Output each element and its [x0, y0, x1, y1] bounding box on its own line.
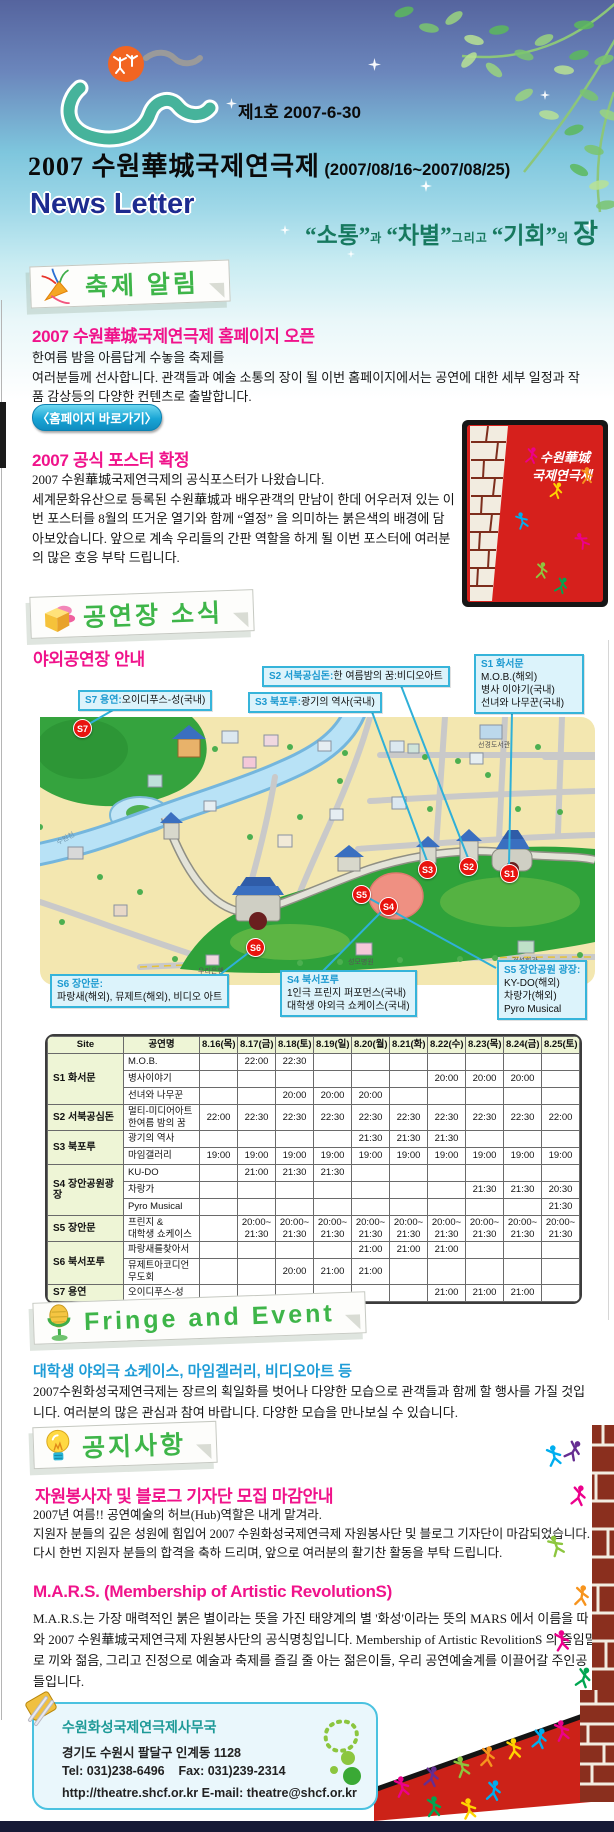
schedule-time-cell: 20:00~ 21:30 — [504, 1216, 542, 1242]
schedule-time-cell — [390, 1182, 428, 1199]
footer-address: 경기도 수원시 팔달구 인계동 1128 — [62, 1742, 241, 1761]
venue-map: 수원천 — [40, 717, 595, 985]
tagline-word: “소통” — [305, 223, 370, 248]
schedule-time-cell — [200, 1165, 238, 1182]
schedule-time-cell: 20:00 — [276, 1259, 314, 1285]
leaf — [593, 53, 614, 68]
leaf — [513, 86, 535, 104]
schedule-time-cell — [276, 1242, 314, 1259]
schedule-table: Site공연명8.16(목)8.17(금)8.18(토)8.19(일)8.20(… — [47, 1036, 580, 1302]
schedule-time-cell: 20:00 — [314, 1088, 352, 1105]
footer-phone-line: Tel: 031)238-6496 Fax: 031)239-2314 — [62, 1764, 286, 1778]
schedule-show-cell: 뮤제트아코디언 무도회 — [124, 1259, 200, 1285]
banner-fold — [196, 1444, 212, 1460]
callout-line: 1인극 프린지 퍼포먼스(국내) — [287, 988, 406, 999]
schedule-time-cell: 21:30 — [542, 1199, 580, 1216]
schedule-time-cell — [276, 1071, 314, 1088]
section-banner-festival-news: 축제 알림 — [29, 260, 230, 309]
schedule-row: S6 북서포루파랑새를찾아서21:0021:0021:00 — [48, 1242, 580, 1259]
schedule-col-header: 8.18(토) — [276, 1037, 314, 1054]
schedule-time-cell: 20:00 — [504, 1071, 542, 1088]
leaf — [568, 48, 590, 62]
schedule-time-cell — [504, 1131, 542, 1148]
fringe-title: 대학생 야외극 쇼케이스, 마임겔러리, 비디오아트 등 — [33, 1360, 352, 1381]
poster-caption-line1: 수원華城 — [540, 450, 592, 465]
schedule-time-cell: 22:30 — [390, 1105, 428, 1131]
schedule-row: S2 서북공심돈멀티-미디어아트 한여름 밤의 꿈22:0022:3022:30… — [48, 1105, 580, 1131]
schedule-show-cell: M.O.B. — [124, 1054, 200, 1071]
page-edge-mark — [0, 402, 6, 468]
schedule-col-header: 8.19(일) — [314, 1037, 352, 1054]
schedule-time-cell — [276, 1131, 314, 1148]
schedule-site-cell: S1 화서문 — [48, 1054, 124, 1105]
tagline-word: “차별” — [386, 223, 451, 248]
callout-head: S7 용연: — [85, 695, 122, 706]
schedule-time-cell — [352, 1054, 390, 1071]
callout-line: 한 여름밤의 꿈:비디오아트 — [333, 671, 443, 682]
leaf — [483, 60, 504, 80]
schedule-time-cell — [238, 1199, 276, 1216]
callout-s2: S2 서북공심돈:한 여름밤의 꿈:비디오아트 — [262, 666, 450, 687]
article-line: 여러분들께 선사합니다. 관객들과 예술 소통의 장이 될 이번 홈페이지에서는… — [32, 368, 588, 407]
schedule-time-cell: 19:00 — [238, 1148, 276, 1165]
schedule-site-cell: S7 용연 — [48, 1285, 124, 1302]
schedule-time-cell: 20:00~ 21:30 — [390, 1216, 428, 1242]
schedule-time-cell: 19:00 — [352, 1148, 390, 1165]
callout-s7: S7 용연:오이디푸스-성(국내) — [78, 690, 212, 711]
gift-cube-icon — [38, 598, 75, 635]
schedule-time-cell — [428, 1165, 466, 1182]
schedule-time-cell — [276, 1199, 314, 1216]
dancing-figure — [575, 1666, 593, 1689]
schedule-time-cell: 20:00~ 21:30 — [466, 1216, 504, 1242]
page-edge-line — [1, 300, 2, 1720]
schedule-time-cell: 21:30 — [276, 1165, 314, 1182]
schedule-time-cell: 19:00 — [390, 1148, 428, 1165]
schedule-time-cell — [466, 1242, 504, 1259]
microphone-icon — [41, 1303, 76, 1342]
schedule-show-cell: 광기의 역사 — [124, 1131, 200, 1148]
schedule-time-cell — [200, 1259, 238, 1285]
callout-line: 대학생 야외극 쇼케이스(국내) — [287, 1001, 410, 1012]
schedule-time-cell — [200, 1054, 238, 1071]
article-body-poster: 2007 수원華城국제연극제의 공식포스터가 나왔습니다. 세계문화유산으로 등… — [32, 470, 456, 568]
schedule-time-cell: 21:30 — [504, 1182, 542, 1199]
article-line: 2007 수원華城국제연극제의 공식포스터가 나왔습니다. — [32, 470, 456, 490]
schedule-time-cell — [314, 1054, 352, 1071]
footer-website-link[interactable]: http://theatre.shcf.or.kr — [62, 1786, 198, 1800]
tagline-joiner: 의 — [557, 231, 569, 245]
schedule-time-cell — [390, 1285, 428, 1302]
schedule-time-cell — [390, 1054, 428, 1071]
schedule-time-cell: 22:30 — [276, 1054, 314, 1071]
schedule-time-cell — [314, 1071, 352, 1088]
dancing-figure — [546, 1444, 561, 1466]
schedule-time-cell — [466, 1199, 504, 1216]
title-dates: (2007/08/16~2007/08/25) — [324, 161, 510, 179]
schedule-time-cell — [314, 1182, 352, 1199]
callout-line: 파랑새(해외), 뮤제트(해외), 비디오 아트 — [57, 992, 222, 1003]
schedule-col-header: 8.24(금) — [504, 1037, 542, 1054]
leaf — [563, 122, 585, 137]
callout-line: 선녀와 나무꾼(국내) — [481, 698, 564, 709]
bottom-bar — [0, 1821, 614, 1832]
article-title-poster: 2007 공식 포스터 확정 — [32, 446, 189, 471]
schedule-time-cell: 20:00~ 21:30 — [238, 1216, 276, 1242]
tagline-word: “기회” — [492, 223, 557, 248]
schedule-time-cell: 20:00~ 21:30 — [542, 1216, 580, 1242]
callout-line: M.O.B.(해외) — [481, 672, 537, 683]
schedule-time-cell — [314, 1242, 352, 1259]
schedule-time-cell — [428, 1199, 466, 1216]
schedule-row: S4 장안공원광장KU-DO21:0021:3021:30 — [48, 1165, 580, 1182]
fringe-body: 2007수원화성국제연극제는 장르의 획일화를 벗어나 다양한 모습으로 관객들… — [33, 1381, 591, 1423]
map-marker-s3: S3 — [418, 860, 437, 879]
schedule-time-cell: 22:30 — [466, 1105, 504, 1131]
page-edge-line — [608, 640, 609, 1320]
footer-tel: Tel: 031)238-6496 — [62, 1764, 165, 1778]
schedule-time-cell — [504, 1165, 542, 1182]
schedule-site-cell: S2 서북공심돈 — [48, 1105, 124, 1131]
schedule-row: 차랑가21:3021:3020:30 — [48, 1182, 580, 1199]
callout-line: KY-DO(해외) — [504, 978, 560, 989]
schedule-col-header: 8.16(목) — [200, 1037, 238, 1054]
schedule-time-cell — [238, 1259, 276, 1285]
schedule-time-cell — [428, 1182, 466, 1199]
schedule-time-cell — [314, 1131, 352, 1148]
schedule-time-cell — [390, 1165, 428, 1182]
schedule-time-cell: 20:00~ 21:30 — [314, 1216, 352, 1242]
callout-head: S2 서북공심돈: — [269, 671, 333, 682]
schedule-time-cell — [542, 1071, 580, 1088]
paint-splat-decoration — [308, 1712, 368, 1792]
schedule-time-cell — [466, 1259, 504, 1285]
tagline: “소통”과 “차별”그리고 “기회”의 장 — [238, 212, 598, 251]
schedule-show-cell: 파랑새를찾아서 — [124, 1242, 200, 1259]
schedule-time-cell: 22:30 — [504, 1105, 542, 1131]
callout-s3: S3 북포루:광기의 역사(국내) — [248, 692, 382, 713]
dancing-figure — [574, 1584, 589, 1606]
schedule-time-cell — [542, 1242, 580, 1259]
mars-title: M.A.R.S. (Membership of Artistic Revolut… — [33, 1582, 392, 1602]
paperclip-icon — [16, 1686, 66, 1738]
schedule-time-cell — [238, 1182, 276, 1199]
map-marker-s1: S1 — [500, 864, 519, 883]
banner-fold — [233, 612, 249, 628]
callout-line: 오이디푸스-성(국내) — [122, 695, 206, 706]
callout-s5: S5 장안공원 광장: KY-DO(해외) 차랑가(해외) Pyro Music… — [497, 960, 587, 1020]
schedule-time-cell — [428, 1054, 466, 1071]
schedule-time-cell — [428, 1088, 466, 1105]
map-marker-s6: S6 — [246, 938, 265, 957]
article-title-homepage-open: 2007 수원華城국제연극제 홈페이지 오픈 — [32, 322, 315, 347]
schedule-col-header: 8.25(토) — [542, 1037, 580, 1054]
schedule-time-cell: 20:00~ 21:30 — [352, 1216, 390, 1242]
schedule-time-cell — [504, 1259, 542, 1285]
map-label-hospital: 성모병원 — [348, 957, 374, 966]
map-marker-s7: S7 — [73, 719, 92, 738]
schedule-time-cell: 20:00~ 21:30 — [428, 1216, 466, 1242]
leaf — [538, 109, 559, 121]
schedule-row: S1 화서문M.O.B.22:0022:30 — [48, 1054, 580, 1071]
callout-head: S3 북포루: — [255, 697, 301, 708]
leaf — [488, 24, 509, 36]
schedule-col-header: 8.17(금) — [238, 1037, 276, 1054]
schedule-col-header: 8.21(화) — [390, 1037, 428, 1054]
schedule-show-cell: 마임갤러리 — [124, 1148, 200, 1165]
schedule-time-cell — [200, 1242, 238, 1259]
leaf — [463, 33, 485, 47]
star-decoration — [347, 250, 355, 258]
notice-line: 2007년 여름!! 공연예술의 허브(Hub)역할은 내게 맡겨라. — [33, 1506, 593, 1525]
schedule-time-cell: 20:00 — [428, 1071, 466, 1088]
schedule-time-cell: 19:00 — [200, 1148, 238, 1165]
callout-head: S5 장안공원 광장: — [504, 965, 580, 976]
schedule-time-cell: 22:00 — [200, 1105, 238, 1131]
callout-head: S6 장안문: — [57, 979, 103, 990]
leaf — [568, 161, 590, 178]
schedule-time-cell — [504, 1199, 542, 1216]
issue-label: 제1호 2007-6-30 — [238, 98, 361, 123]
schedule-time-cell — [352, 1165, 390, 1182]
schedule-time-cell: 21:00 — [238, 1165, 276, 1182]
leaf — [459, 50, 480, 71]
schedule-time-cell: 21:00 — [352, 1259, 390, 1285]
callout-head: S1 화서문 — [481, 659, 524, 670]
schedule-time-cell: 21:00 — [428, 1242, 466, 1259]
schedule-time-cell: 22:30 — [238, 1105, 276, 1131]
schedule-time-cell: 22:30 — [352, 1105, 390, 1131]
schedule-time-cell — [238, 1242, 276, 1259]
map-label-library: 선경도서관 — [478, 740, 511, 749]
section-banner-notice: 공지사항 — [32, 1421, 217, 1469]
schedule-show-cell: 병사이야기 — [124, 1071, 200, 1088]
schedule-time-cell — [238, 1131, 276, 1148]
schedule-site-cell: S3 북포루 — [48, 1131, 124, 1165]
schedule-time-cell: 21:00 — [504, 1285, 542, 1302]
schedule-time-cell: 20:00 — [352, 1088, 390, 1105]
dancing-figure — [571, 1484, 588, 1506]
schedule-time-cell — [200, 1199, 238, 1216]
schedule-time-cell — [390, 1259, 428, 1285]
schedule-time-cell: 20:00 — [466, 1071, 504, 1088]
schedule-time-cell — [238, 1071, 276, 1088]
callout-s1: S1 화서문 M.O.B.(해외) 병사 이야기(국내) 선녀와 나무꾼(국내) — [474, 654, 584, 714]
schedule-time-cell — [542, 1054, 580, 1071]
schedule-time-cell: 19:00 — [504, 1148, 542, 1165]
callout-line: 차랑가(해외) — [504, 991, 557, 1002]
callout-line: Pyro Musical — [504, 1004, 561, 1015]
schedule-time-cell — [390, 1199, 428, 1216]
schedule-col-header: 8.20(월) — [352, 1037, 390, 1054]
schedule-time-cell: 22:00 — [238, 1054, 276, 1071]
mars-body: M.A.R.S.는 가장 매력적인 붉은 별이라는 뜻을 가진 태양계의 별 '… — [33, 1608, 599, 1692]
leaf — [393, 4, 415, 19]
schedule-row: 선녀와 나무꾼20:0020:0020:00 — [48, 1088, 580, 1105]
schedule-time-cell: 22:30 — [314, 1105, 352, 1131]
schedule-time-cell: 21:00 — [314, 1259, 352, 1285]
dancing-figure — [555, 1630, 569, 1651]
footer-org: 수원화성국제연극제사무국 — [62, 1717, 217, 1737]
schedule-time-cell — [466, 1131, 504, 1148]
section-label: Fringe and Event — [84, 1299, 336, 1337]
schedule-time-cell: 19:00 — [276, 1148, 314, 1165]
page-title: 2007 수원華城국제연극제 (2007/08/16~2007/08/25) — [28, 146, 510, 183]
schedule-row: Pyro Musical21:30 — [48, 1199, 580, 1216]
section-label: 축제 알림 — [84, 264, 199, 304]
newsletter-page: 제1호 2007-6-30 2007 수원華城국제연극제 (2007/08/16… — [0, 0, 614, 1832]
schedule-time-cell — [466, 1088, 504, 1105]
lightbulb-icon — [41, 1428, 74, 1467]
red-slope-figures-art — [374, 1690, 614, 1821]
schedule-time-cell — [200, 1071, 238, 1088]
schedule-site-cell: S5 장안문 — [48, 1216, 124, 1242]
callout-line: 광기의 역사(국내) — [301, 697, 375, 708]
schedule-time-cell: 21:30 — [466, 1182, 504, 1199]
schedule-time-cell — [200, 1216, 238, 1242]
schedule-time-cell — [504, 1242, 542, 1259]
schedule-time-cell — [352, 1071, 390, 1088]
schedule-time-cell: 21:00 — [352, 1242, 390, 1259]
homepage-link-button[interactable]: 〈홈페이지 바로가기〉 — [32, 404, 162, 431]
schedule-time-cell — [200, 1131, 238, 1148]
schedule-time-cell — [352, 1199, 390, 1216]
banner-fold — [345, 1314, 361, 1330]
schedule-time-cell — [390, 1071, 428, 1088]
schedule-time-cell: 19:00 — [542, 1148, 580, 1165]
official-poster-image: 수원華城 국제연극제 — [462, 420, 608, 607]
schedule-time-cell: 22:30 — [428, 1105, 466, 1131]
schedule-time-cell — [390, 1088, 428, 1105]
schedule-time-cell — [504, 1054, 542, 1071]
leaf — [554, 65, 575, 76]
title-text: 2007 수원華城국제연극제 — [28, 152, 320, 181]
schedule-time-cell: 20:30 — [542, 1182, 580, 1199]
schedule-time-cell: 20:00~ 21:30 — [276, 1216, 314, 1242]
schedule-time-cell — [466, 1165, 504, 1182]
schedule-time-cell: 21:00 — [390, 1242, 428, 1259]
schedule-show-cell: 선녀와 나무꾼 — [124, 1088, 200, 1105]
schedule-time-cell: 19:00 — [428, 1148, 466, 1165]
schedule-time-cell: 21:00 — [428, 1285, 466, 1302]
schedule-show-cell: KU-DO — [124, 1165, 200, 1182]
schedule-time-cell: 22:00 — [542, 1105, 580, 1131]
schedule-show-cell: 프린지 & 대학생 쇼케이스 — [124, 1216, 200, 1242]
schedule-time-cell — [542, 1259, 580, 1285]
tagline-word: 장 — [573, 219, 598, 249]
schedule-col-header: Site — [48, 1037, 124, 1054]
schedule-time-cell — [466, 1054, 504, 1071]
schedule-site-cell: S4 장안공원광장 — [48, 1165, 124, 1216]
schedule-time-cell — [200, 1088, 238, 1105]
map-marker-s4: S4 — [379, 897, 398, 916]
footer-contact-box: 수원화성국제연극제사무국 경기도 수원시 팔달구 인계동 1128 Tel: 0… — [32, 1702, 378, 1810]
callout-line: 병사 이야기(국내) — [481, 685, 555, 696]
schedule-time-cell — [504, 1088, 542, 1105]
section-banner-venue-news: 공연장 소식 — [29, 589, 254, 639]
schedule-time-cell: 21:30 — [352, 1131, 390, 1148]
schedule-show-cell: Pyro Musical — [124, 1199, 200, 1216]
map-marker-s5: S5 — [352, 885, 371, 904]
schedule-col-header: 8.23(목) — [466, 1037, 504, 1054]
tagline-joiner: 과 — [370, 231, 382, 245]
section-label: 공연장 소식 — [82, 593, 223, 634]
callout-s6: S6 장안문: 파랑새(해외), 뮤제트(해외), 비디오 아트 — [50, 974, 229, 1008]
schedule-time-cell: 21:00 — [466, 1285, 504, 1302]
schedule-time-cell: 21:30 — [428, 1131, 466, 1148]
climbing-figures-art — [534, 1425, 614, 1710]
schedule-time-cell: 19:00 — [466, 1148, 504, 1165]
schedule-col-header: 공연명 — [124, 1037, 200, 1054]
schedule-time-cell — [542, 1131, 580, 1148]
schedule-time-cell: 19:00 — [314, 1148, 352, 1165]
leaf — [418, 22, 439, 34]
schedule-time-cell — [276, 1182, 314, 1199]
schedule-row: S5 장안문프린지 & 대학생 쇼케이스20:00~ 21:3020:00~ 2… — [48, 1216, 580, 1242]
notice-line: 지원자 분들의 깊은 성원에 힘입어 2007 수원화성국제연극제 자원봉사단 … — [33, 1525, 593, 1563]
schedule-time-cell: 21:30 — [390, 1131, 428, 1148]
map-marker-s2: S2 — [459, 857, 478, 876]
schedule-time-cell — [542, 1165, 580, 1182]
schedule-time-cell — [352, 1182, 390, 1199]
banner-fold — [209, 283, 225, 299]
newsletter-label: News Letter — [30, 188, 194, 221]
schedule-time-cell — [542, 1088, 580, 1105]
leaf — [574, 21, 594, 30]
schedule-site-cell: S6 북서포루 — [48, 1242, 124, 1285]
shuttlecock-flower-icon — [38, 267, 77, 306]
callout-head: S4 북서포루 — [287, 975, 339, 986]
schedule-col-header: 8.22(수) — [428, 1037, 466, 1054]
article-line: 세계문화유산으로 등록된 수원華城과 배우관객의 만남이 한데 어우러져 있는 … — [32, 490, 456, 568]
schedule-time-cell: 20:00 — [276, 1088, 314, 1105]
schedule-row: 뮤제트아코디언 무도회20:0021:0021:00 — [48, 1259, 580, 1285]
schedule-time-cell — [314, 1199, 352, 1216]
schedule-time-cell: 22:30 — [276, 1105, 314, 1131]
dancing-figure — [564, 1439, 584, 1462]
schedule-time-cell — [542, 1285, 580, 1302]
schedule-show-cell: 멀티-미디어아트 한여름 밤의 꿈 — [124, 1105, 200, 1131]
leaf — [588, 179, 609, 192]
footer-fax: Fax: 031)239-2314 — [179, 1764, 286, 1778]
notice-title: 자원봉사자 및 블로그 기자단 모집 마감안내 — [35, 1482, 333, 1507]
notice-body: 2007년 여름!! 공연예술의 허브(Hub)역할은 내게 맡겨라. 지원자 … — [33, 1506, 593, 1563]
venue-subtitle: 야외공연장 안내 — [33, 645, 145, 670]
map-illustration: 수원천 — [40, 717, 595, 985]
article-body-homepage: 한여름 밤을 아름답게 수놓을 축제를 여러분들께 선사합니다. 관객들과 예술… — [32, 348, 588, 407]
callout-s4: S4 북서포루 1인극 프린지 퍼포먼스(국내) 대학생 야외극 쇼케이스(국내… — [280, 970, 417, 1017]
schedule-time-cell: 21:30 — [314, 1165, 352, 1182]
section-label: 공지사항 — [81, 1425, 186, 1465]
schedule-show-cell: 차랑가 — [124, 1182, 200, 1199]
tagline-joiner: 그리고 — [452, 231, 488, 245]
festival-logo — [52, 40, 237, 148]
leaf — [443, 9, 465, 28]
schedule-time-cell — [200, 1182, 238, 1199]
schedule-time-cell — [428, 1259, 466, 1285]
schedule-time-cell — [238, 1088, 276, 1105]
schedule-row: S3 북포루광기의 역사21:3021:3021:30 — [48, 1131, 580, 1148]
article-line: 한여름 밤을 아름답게 수놓을 축제를 — [32, 348, 588, 368]
dancing-figure — [547, 1534, 565, 1557]
schedule-table-wrap: Site공연명8.16(목)8.17(금)8.18(토)8.19(일)8.20(… — [45, 1034, 582, 1304]
schedule-row: 마임갤러리19:0019:0019:0019:0019:0019:0019:00… — [48, 1148, 580, 1165]
schedule-row: 병사이야기20:0020:0020:00 — [48, 1071, 580, 1088]
